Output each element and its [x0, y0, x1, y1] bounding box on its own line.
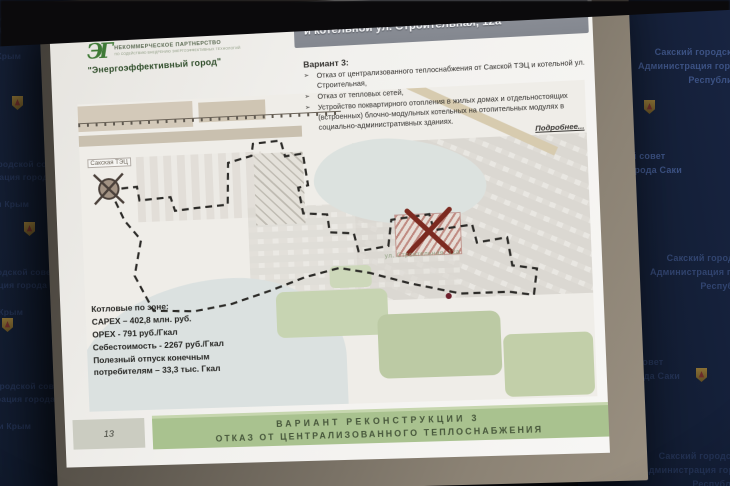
footer-banner: ВАРИАНТ РЕКОНСТРУКЦИИ 3 ОТКАЗ ОТ ЦЕНТРАЛ… [152, 402, 609, 449]
city-crest-icon [24, 222, 35, 236]
heat-zone-boundary [108, 129, 538, 314]
slide-title: Зона теплоснабжения Сакской ТЭЦ и котель… [293, 0, 589, 48]
map-marker-dot [446, 293, 452, 299]
projection-screen: ЭГ НЕКОММЕРЧЕСКОЕ ПАРТНЕРСТВО ПО СОДЕЙСТ… [39, 0, 649, 486]
organization-logo: ЭГ НЕКОММЕРЧЕСКОЕ ПАРТНЕРСТВО ПО СОДЕЙСТ… [87, 32, 294, 73]
zone-cost-stats: Котловые по зоне: CAPEX – 402,8 млн. руб… [91, 296, 285, 379]
city-crest-icon [12, 96, 23, 110]
variant-3-text-block: Вариант 3: ➢ Отказ от централизованного … [303, 45, 591, 144]
tpp-closed-icon [94, 174, 124, 205]
eg-monogram-icon: ЭГ [87, 42, 110, 62]
city-crest-icon [644, 100, 655, 114]
city-crest-icon [696, 368, 707, 382]
wall-text-block: Сакский городской совет Администрация го… [622, 46, 730, 88]
arrow-bullet-icon: ➢ [304, 71, 318, 92]
wall-text-block: Сакский городской совет Администрация го… [634, 252, 730, 294]
arrow-bullet-icon: ➢ [305, 103, 319, 134]
conference-room-photo: Сакский городской совет Администрация го… [0, 0, 730, 486]
presentation-slide: ЭГ НЕКОММЕРЧЕСКОЕ ПАРТНЕРСТВО ПО СОДЕЙСТ… [49, 0, 610, 468]
arrow-bullet-icon: ➢ [304, 92, 317, 103]
page-number: 13 [72, 418, 145, 450]
city-crest-icon [2, 318, 13, 332]
